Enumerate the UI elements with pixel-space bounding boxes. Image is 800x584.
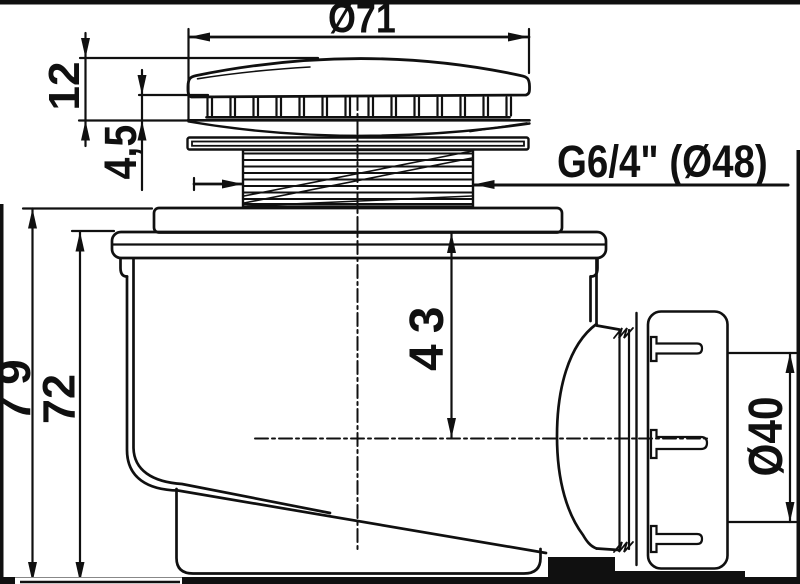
svg-text:43: 43: [401, 296, 454, 371]
svg-text:Ø40: Ø40: [740, 397, 793, 477]
svg-text:12: 12: [40, 61, 89, 110]
svg-text:Ø71: Ø71: [328, 0, 396, 42]
svg-text:4,5: 4,5: [96, 125, 146, 180]
svg-text:72: 72: [34, 374, 85, 424]
svg-text:G6/4" (Ø48): G6/4" (Ø48): [557, 136, 768, 187]
